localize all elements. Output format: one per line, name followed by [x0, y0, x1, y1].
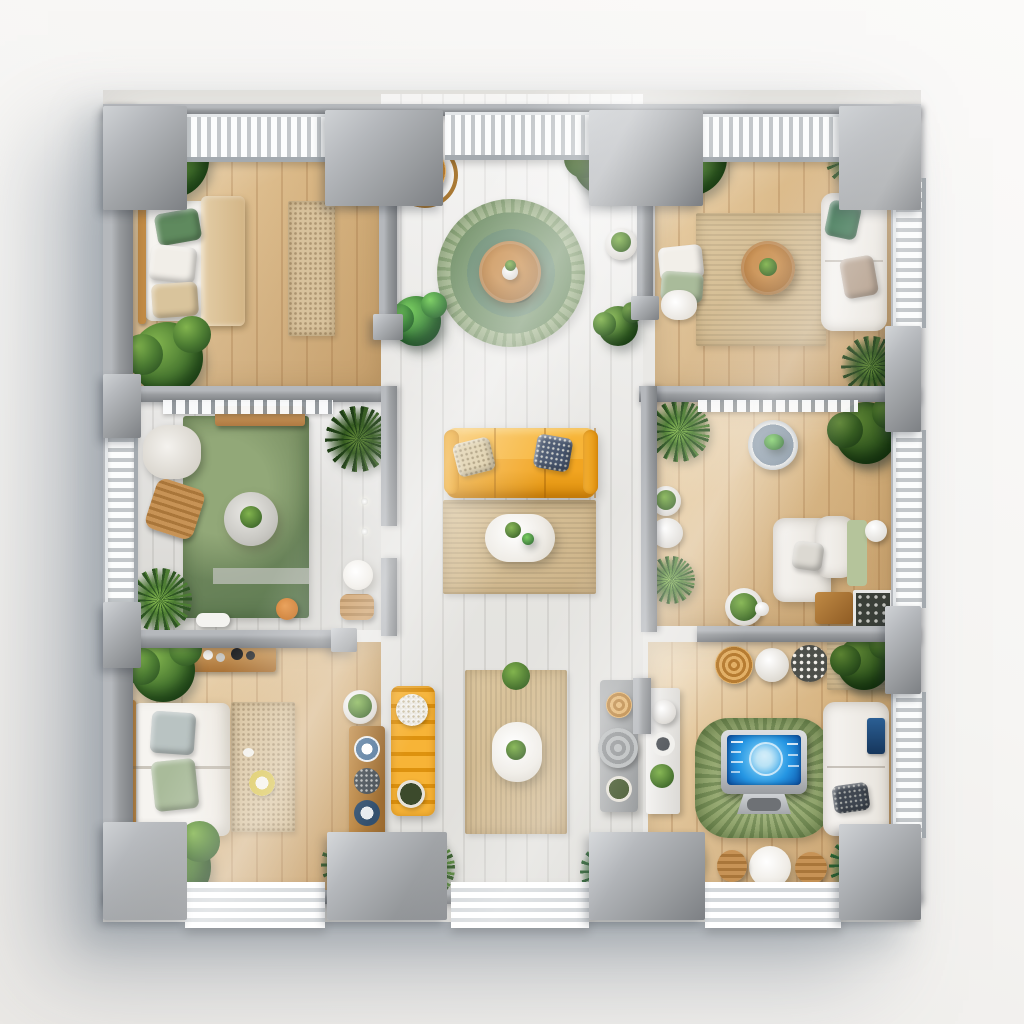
pillow-dark-office [831, 782, 871, 815]
bowl-of-greens [397, 780, 425, 808]
pillar-top-right-corner [839, 106, 921, 210]
wall-cap-bl-door [331, 628, 357, 652]
succulent-entry [611, 232, 631, 252]
bed-headboard [138, 198, 146, 324]
screen-widget-bar [731, 741, 743, 743]
rug-top-plant [502, 662, 530, 690]
pergola-slats-mr [698, 400, 858, 412]
pillar-bottom-right-corner [839, 824, 921, 920]
shelf-bowl-1 [652, 700, 676, 724]
succulent-mr [656, 490, 676, 510]
oval-coffee-table [485, 514, 555, 562]
side-table-small [343, 560, 373, 590]
wood-side-table-mr [815, 592, 853, 624]
pillow-white [148, 244, 198, 285]
pillar-right-mid-2 [885, 606, 921, 694]
plate-blue-white [354, 736, 380, 762]
rattan-pot [606, 692, 632, 718]
corridor-spotlight [361, 528, 368, 535]
pergola-slats-den [163, 400, 333, 414]
sofa-seam-office [827, 766, 885, 768]
pillow-grayblue [150, 711, 197, 756]
den-stool [340, 594, 374, 620]
rug-tray-yellow [249, 770, 275, 796]
wall-cap-entry-left [373, 314, 403, 340]
potted-plant-bl-green [348, 694, 372, 718]
deco-plate-white [396, 694, 428, 726]
white-armchair [143, 425, 201, 479]
rug-deco-white [243, 748, 254, 757]
pillar-bottom-mid-right [589, 832, 705, 920]
pillow-taupe-living [839, 254, 879, 299]
screen-widget-bar [788, 765, 799, 767]
pillar-left-mid-2 [103, 602, 141, 668]
shag-rug [288, 201, 335, 336]
wall-cap-entry-right [631, 296, 659, 320]
screen-widget-bar [731, 771, 740, 773]
moss-bowl-plant [730, 593, 758, 621]
pouf-patterned [791, 645, 828, 682]
plush-toy [661, 290, 697, 320]
plate-dark [354, 768, 380, 794]
white-tray [196, 613, 230, 627]
bed-blanket [201, 196, 245, 326]
greens-bowl-console [606, 776, 632, 802]
bistro-chair-left [717, 850, 747, 882]
screen-widget-bar [731, 751, 741, 753]
wall-above-bedroom-bl [125, 630, 337, 648]
deck-steps-right [705, 882, 841, 928]
shag-rug-bl [231, 702, 295, 832]
shelf-ornament-white [203, 650, 213, 660]
plate-navy [354, 800, 380, 826]
small-white-ball [755, 602, 769, 616]
deck-steps-left [185, 882, 325, 928]
vase-plant [505, 260, 516, 271]
shelf-ornament-silver [216, 653, 225, 662]
screen-widget-bar [787, 743, 798, 745]
pillow-slate-patterned [532, 433, 573, 473]
shelf-bottle-dark2 [246, 651, 255, 660]
ball-lamp [865, 520, 887, 542]
railing-right-office [893, 692, 926, 838]
table-plant-1 [505, 522, 521, 538]
railing-right-lounge [893, 430, 926, 608]
basin-plant [764, 434, 784, 450]
apartment-building [103, 90, 921, 922]
rug-path-stripe [213, 568, 309, 584]
screen-widget-bar [788, 754, 798, 756]
wall-corridor-right [641, 386, 657, 632]
table-plant-2 [522, 533, 534, 545]
screen-widget-bar [731, 761, 743, 763]
pillar-left-mid-1 [103, 374, 141, 438]
pillow-beige [151, 281, 199, 318]
wall-stub-office-door [633, 678, 651, 734]
dining-table-plant [506, 740, 526, 760]
armchair-pillow [791, 540, 825, 572]
shelf-greens [650, 764, 674, 788]
floor-plan-scene [0, 0, 1024, 1024]
yellow-sofa-armrest-right [583, 430, 598, 494]
pillar-right-mid-1 [885, 326, 921, 432]
shelf-bowl-2 [651, 732, 675, 756]
window-left-den [105, 428, 138, 608]
wall-corridor-left-upper [381, 386, 397, 526]
lidded-pot [598, 728, 638, 768]
pillar-bottom-mid-left [327, 832, 447, 920]
pillar-bottom-left-corner [103, 822, 187, 920]
pillar-top-mid-right [589, 110, 703, 206]
tablet-blue [867, 718, 885, 754]
screen-globe-graphic [749, 742, 783, 776]
wall-corridor-left-lower [381, 558, 397, 636]
monitor-trackpad [747, 798, 781, 811]
bush-plant-tl-room [131, 322, 203, 394]
sage-mat [847, 520, 867, 586]
corridor-spotlight [361, 498, 368, 505]
pouf-white [755, 648, 789, 682]
pillow-sage-bl [151, 758, 200, 812]
shelf-bottle-dark [231, 648, 243, 660]
orange-pot [276, 598, 298, 620]
bistro-chair-right [795, 852, 827, 884]
deck-steps-middle [451, 882, 589, 928]
boxwood-bush [837, 636, 891, 690]
den-table-plant [240, 506, 262, 528]
coffee-table-plant [759, 258, 777, 276]
pillar-top-mid-left [325, 110, 443, 206]
pillar-top-left-corner [103, 106, 187, 210]
pouf-rattan [715, 646, 753, 684]
